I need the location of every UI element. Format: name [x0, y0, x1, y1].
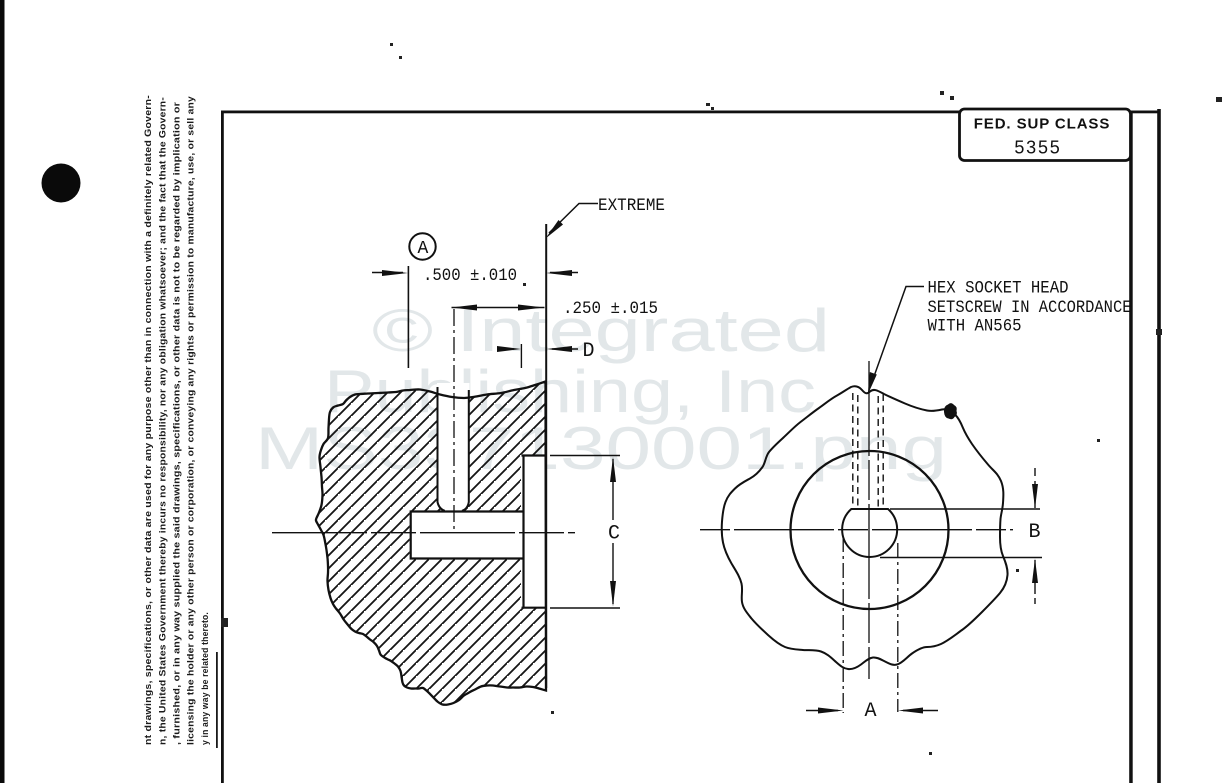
svg-text:licensing the holder or any ot: licensing the holder or any other person… — [186, 95, 196, 745]
svg-text:.250 ±.015: .250 ±.015 — [563, 299, 658, 319]
svg-text:5355: 5355 — [1014, 138, 1061, 158]
svg-text:FED. SUP CLASS: FED. SUP CLASS — [974, 116, 1111, 133]
svg-text:.500 ±.010: .500 ±.010 — [423, 266, 517, 286]
svg-text:SETSCREW IN ACCORDANCE: SETSCREW IN ACCORDANCE — [928, 298, 1132, 318]
svg-text:A: A — [418, 239, 429, 259]
svg-text:A: A — [865, 700, 877, 723]
svg-text:HEX SOCKET HEAD: HEX SOCKET HEAD — [928, 279, 1069, 299]
svg-text:D: D — [583, 340, 595, 363]
svg-text:y in any way be related theret: y in any way be related thereto. — [200, 612, 210, 745]
svg-text:EXTREME: EXTREME — [598, 196, 665, 216]
svg-text:n, the United States Governmen: n, the United States Government thereby … — [158, 97, 168, 745]
svg-text:WITH AN565: WITH AN565 — [928, 317, 1022, 337]
svg-text:nt drawings, specifications, o: nt drawings, specifications, or other da… — [143, 95, 153, 745]
svg-text:, furnished, or in any way sup: , furnished, or in any way supplied the … — [172, 102, 182, 745]
svg-text:C: C — [608, 523, 620, 546]
svg-text:B: B — [1029, 521, 1041, 544]
